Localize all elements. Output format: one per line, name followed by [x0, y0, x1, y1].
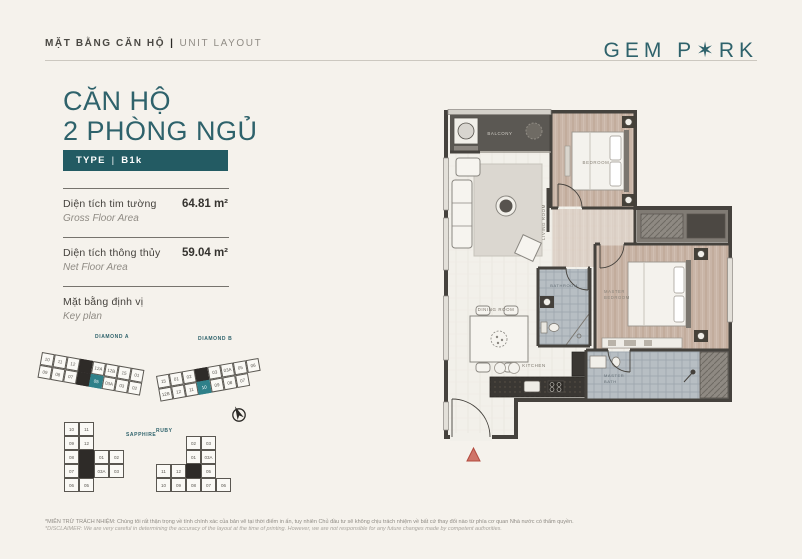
unit-cell: 03 — [201, 436, 216, 450]
toilet — [612, 357, 620, 367]
unit-cell: 07 — [201, 478, 216, 492]
sink — [524, 381, 540, 392]
armchair — [456, 158, 480, 176]
disclaimer: *MIỄN TRỪ TRÁCH NHIỆM: Chúng tôi rất thậ… — [45, 519, 759, 533]
ruby-grid: 02030103A1112051009080706 — [156, 436, 231, 492]
type-separator: | — [112, 155, 116, 166]
dining-room-label: DINING ROOM — [478, 307, 515, 312]
floorplan: BALCONY LIVING ROOM BEDROOM DINING ROOM … — [438, 100, 738, 503]
type-value: B1k — [121, 155, 142, 166]
ac-unit-left — [641, 214, 683, 238]
bedroom-label: BEDROOM — [583, 160, 610, 165]
bathroom-label: BATHROOM — [550, 283, 578, 288]
balcony-label: BALCONY — [487, 131, 512, 136]
net-area-row: Diện tích thông thủy Net Floor Area 59.0… — [63, 237, 229, 286]
unit-cell: 11 — [156, 464, 171, 478]
headboard — [624, 130, 629, 192]
net-area-label-en: Net Floor Area — [63, 262, 160, 273]
page-header: MẶT BẰNG CĂN HỘ|UNIT LAYOUT — [45, 38, 262, 49]
plant — [526, 123, 542, 139]
type-badge: TYPE | B1k — [63, 150, 228, 171]
compass-icon — [228, 404, 250, 426]
keyplan-label-vi: Mặt bằng định vị — [63, 296, 143, 308]
unit-cell: 02 — [127, 381, 142, 396]
header-title-vi: MẶT BẰNG CĂN HỘ — [45, 38, 165, 49]
tv — [547, 188, 550, 232]
unit-cell: 10 — [156, 478, 171, 492]
master-bath-label-1: MASTER — [604, 373, 624, 378]
logo-text-left: GEM P — [604, 39, 697, 62]
mbath-sink — [590, 356, 606, 368]
unit-cell: 06 — [216, 478, 231, 492]
unit-cell: 09 — [171, 478, 186, 492]
entry-marker — [467, 448, 480, 461]
unit-title-line1: CĂN HỘ — [63, 86, 258, 116]
gross-area-value: 64.81 m² — [182, 198, 228, 224]
header-title-en: UNIT LAYOUT — [180, 38, 263, 49]
unit-cell: 07 — [235, 373, 250, 388]
stool — [495, 363, 506, 374]
floorplan-drawing: BALCONY LIVING ROOM BEDROOM DINING ROOM … — [438, 100, 738, 498]
unit-cell: 08 — [186, 478, 201, 492]
gem-park-logo: GEM P✶RK — [604, 38, 758, 63]
unit-cell: 03A — [94, 464, 109, 478]
header-separator: | — [170, 38, 174, 49]
living-room-label: LIVING ROOM — [541, 204, 546, 240]
disclaimer-vi: *MIỄN TRỪ TRÁCH NHIỆM: Chúng tôi rất thậ… — [45, 519, 759, 526]
net-area-label-vi: Diện tích thông thủy — [63, 247, 160, 259]
toilet — [549, 324, 559, 332]
stool — [509, 363, 520, 374]
unit-cell — [79, 450, 94, 464]
unit-cell: 12 — [171, 464, 186, 478]
unit-cell: 09 — [64, 436, 79, 450]
logo-text-right: RK — [719, 39, 758, 62]
unit-cell: 05 — [201, 464, 216, 478]
diamond-b-label: DIAMOND B — [198, 336, 232, 342]
ruby-label: RUBY — [156, 428, 173, 434]
diamond-a-label: DIAMOND A — [95, 334, 129, 340]
keyplan-label-en: Key plan — [63, 311, 143, 322]
unit-cell: 12 — [79, 436, 94, 450]
keyplan-diagram: DIAMOND A DIAMOND B 10111212A12B1501 090… — [40, 334, 270, 506]
gross-area-label-vi: Diện tích tim tường — [63, 198, 157, 210]
diamond-b-strip: 1501020303A0506 12B121110090807 — [156, 358, 263, 402]
chair — [476, 363, 490, 372]
unit-cell: 05 — [79, 478, 94, 492]
logo-star-icon: ✶ — [696, 39, 719, 62]
gross-area-label-en: Gross Floor Area — [63, 213, 157, 224]
gross-area-row: Diện tích tim tường Gross Floor Area 64.… — [63, 188, 229, 237]
net-area-value: 59.04 m² — [182, 247, 228, 273]
kitchen-label: KITCHEN — [522, 363, 545, 368]
sapphire-grid: 101109120801020703A030605 — [64, 422, 124, 492]
unit-cell: 06 — [64, 478, 79, 492]
unit-cell: 03A — [201, 450, 216, 464]
disclaimer-en: *DISCLAIMER: We are very careful in dete… — [45, 526, 759, 533]
unit-cell — [79, 464, 94, 478]
type-label: TYPE — [76, 155, 106, 166]
master-bath-label-2: BATH — [604, 379, 617, 384]
sofa — [452, 180, 472, 248]
unit-cell: 11 — [79, 422, 94, 436]
area-info: Diện tích tim tường Gross Floor Area 64.… — [63, 188, 229, 335]
dining-table — [470, 316, 528, 362]
unit-cell: 02 — [186, 436, 201, 450]
headboard — [686, 260, 691, 328]
unit-cell: 01 — [186, 450, 201, 464]
unit-cell: 10 — [64, 422, 79, 436]
unit-cell — [186, 464, 201, 478]
ac-unit-right — [687, 214, 725, 238]
shower — [700, 352, 728, 398]
master-bedroom-label-1: MASTER — [604, 289, 625, 294]
unit-cell: 01 — [94, 450, 109, 464]
balcony-shelf — [454, 146, 478, 151]
sapphire-label: SAPPHIRE — [126, 432, 156, 438]
bench — [565, 146, 570, 176]
unit-cell: 08 — [64, 450, 79, 464]
unit-title-line2: 2 PHÒNG NGỦ — [63, 116, 258, 146]
brochure-page: MẶT BẰNG CĂN HỘ|UNIT LAYOUT GEM P✶RK CĂN… — [0, 0, 802, 559]
unit-cell: 07 — [64, 464, 79, 478]
unit-cell: 06 — [246, 358, 261, 373]
keyplan-heading-row: Mặt bằng định vị Key plan — [63, 286, 229, 335]
master-bedroom-label-2: BEDROOM — [604, 295, 630, 300]
unit-cell: 03 — [109, 464, 124, 478]
unit-cell: 02 — [109, 450, 124, 464]
fridge — [572, 352, 586, 376]
diamond-a-strip: 10111212A12B1501 0908070503A0302 — [37, 352, 144, 396]
unit-title: CĂN HỘ 2 PHÒNG NGỦ — [63, 86, 258, 146]
